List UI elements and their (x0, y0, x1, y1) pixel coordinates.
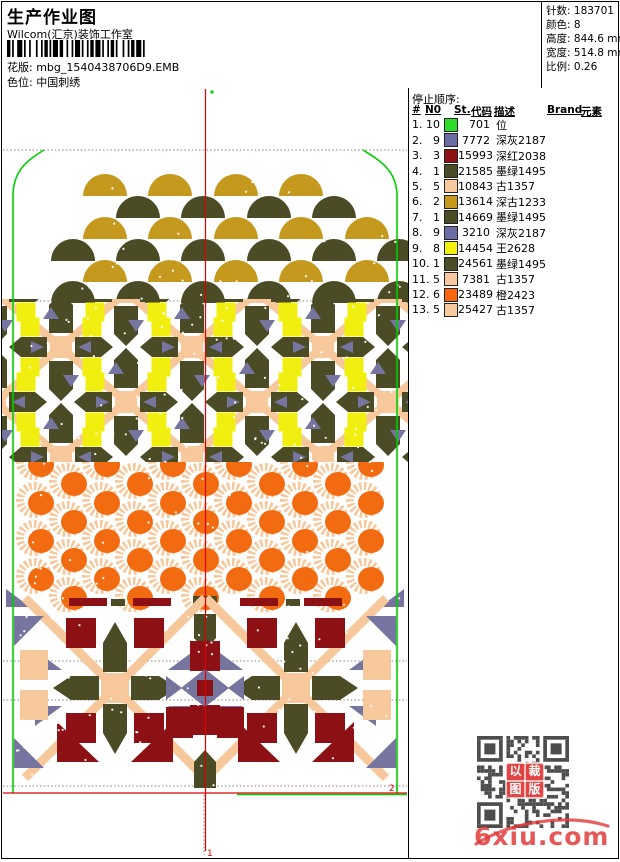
row-number: 6. (411, 195, 426, 208)
row-number: 12. (411, 288, 426, 301)
table-row: 5.510843古1357 (411, 179, 618, 194)
needle-number: 1 (426, 211, 440, 224)
stamp-char: 版 (525, 781, 544, 799)
stitch-count: 14669 (458, 211, 490, 224)
row-number: 8. (411, 226, 426, 239)
table-row: 1.10701位 (411, 117, 618, 132)
stat-scale: 比例: 0.26 (546, 61, 620, 75)
copyright-stamp: 以 裁 图 版 (506, 763, 544, 798)
needle-number: 10 (426, 118, 440, 131)
thread-description: 墨绿1495 (496, 163, 546, 179)
stitch-count: 24561 (458, 257, 490, 270)
needle-number: 5 (426, 303, 440, 316)
row-number: 5. (411, 180, 426, 193)
stamp-char: 以 (506, 763, 525, 781)
color-swatch (444, 226, 458, 240)
band-scallops (51, 174, 408, 303)
color-swatch (444, 303, 458, 317)
stitch-count: 23489 (458, 288, 490, 301)
thread-description: 墨绿1495 (496, 256, 546, 272)
stitch-count: 14454 (458, 242, 490, 255)
thread-description: 墨绿1495 (496, 209, 546, 225)
thread-description: 深灰2187 (496, 132, 546, 148)
stitch-count: 7381 (458, 273, 490, 286)
svg-text:2: 2 (389, 784, 395, 794)
pattern-label: 花版: (7, 61, 33, 74)
row-number: 9. (411, 242, 426, 255)
row-number: 1. (411, 118, 426, 131)
thread-description: 深灰2187 (496, 225, 546, 241)
row-number: 13. (411, 303, 426, 316)
needle-number: 1 (426, 165, 440, 178)
color-swatch (444, 133, 458, 147)
thread-description: 深古1233 (496, 194, 546, 210)
stat-width: 宽度: 514.8 mm (546, 47, 620, 61)
table-row: 11.57381古1357 (411, 271, 618, 286)
thread-description: 古1357 (496, 271, 535, 287)
color-swatch (444, 272, 458, 286)
needle-number: 8 (426, 242, 440, 255)
needle-number: 5 (426, 273, 440, 286)
design-preview-area: 21 (2, 88, 409, 858)
table-row: 12.623489橙2423 (411, 287, 618, 302)
color-swatch (444, 195, 458, 209)
color-swatch (444, 179, 458, 193)
embroidery-design: 21 (2, 88, 408, 858)
page-title: 生产作业图 (7, 3, 97, 28)
needle-number: 3 (426, 149, 440, 162)
needle-number: 2 (426, 195, 440, 208)
thread-description: 位 (496, 117, 507, 133)
table-row: 2.97772深灰2187 (411, 132, 618, 147)
col-needle: N0 (425, 104, 441, 116)
stitch-count: 701 (458, 118, 490, 131)
thread-description: 古1357 (496, 302, 535, 318)
thread-description: 橙2423 (496, 287, 535, 303)
thread-description: 王2628 (496, 240, 535, 256)
stat-stitches: 针数: 183701 (546, 5, 620, 19)
table-row: 8.93210深灰2187 (411, 225, 618, 240)
row-number: 2. (411, 134, 426, 147)
pattern-file-line: 花版: mbg_1540438706D9.EMB (7, 59, 179, 75)
color-swatch (444, 210, 458, 224)
watermark-text: 6xiu.com (474, 822, 609, 851)
row-number: 10. (411, 257, 426, 270)
svg-text:1: 1 (207, 849, 213, 858)
col-idx: # (412, 104, 421, 116)
table-row: 4.121585墨绿1495 (411, 163, 618, 178)
table-row: 9.814454王2628 (411, 241, 618, 256)
needle-number: 9 (426, 226, 440, 239)
needle-number: 5 (426, 180, 440, 193)
col-stitches: St. (454, 104, 471, 116)
table-row: 3.315993深红2038 (411, 148, 618, 163)
stitch-count: 3210 (458, 226, 490, 239)
row-number: 3. (411, 149, 426, 162)
pattern-value: mbg_1540438706D9.EMB (36, 61, 179, 74)
row-number: 7. (411, 211, 426, 224)
color-swatch (444, 118, 458, 132)
row-number: 11. (411, 273, 426, 286)
row-number: 4. (411, 165, 426, 178)
barcode (7, 40, 240, 57)
stitch-count: 15993 (458, 149, 490, 162)
table-row: 13.525427古1357 (411, 302, 618, 317)
needle-number: 1 (426, 257, 440, 270)
col-brand: Brand (547, 104, 582, 116)
stitch-count: 7772 (458, 134, 490, 147)
stamp-char: 裁 (525, 763, 544, 781)
stitch-count: 25427 (458, 303, 490, 316)
design-stats-panel: 针数: 183701 颜色: 8 高度: 844.6 mm 宽度: 514.8 … (541, 2, 620, 91)
color-swatch (444, 149, 458, 163)
stamp-char: 图 (506, 781, 525, 799)
color-swatch (444, 241, 458, 255)
thread-description: 深红2038 (496, 148, 546, 164)
table-row: 7.114669墨绿1495 (411, 210, 618, 225)
needle-number: 9 (426, 134, 440, 147)
stat-colors: 颜色: 8 (546, 19, 620, 33)
stat-height: 高度: 844.6 mm (546, 33, 620, 47)
needle-number: 6 (426, 288, 440, 301)
band-dots (20, 448, 384, 610)
stop-table-body: 1.10701位2.97772深灰21873.315993深红20384.121… (411, 117, 618, 318)
color-swatch (444, 164, 458, 178)
thread-description: 古1357 (496, 178, 535, 194)
color-swatch (444, 257, 458, 271)
color-swatch (444, 288, 458, 302)
table-row: 10.124561墨绿1495 (411, 256, 618, 271)
stitch-count: 21585 (458, 165, 490, 178)
header: 生产作业图 Wilcom(汇京)装饰工作室 花版: mbg_1540438706… (2, 2, 618, 89)
table-row: 6.213614深古1233 (411, 194, 618, 209)
table-header-row: # N0 St. 代码 描述 Brand 元素 (409, 104, 618, 118)
stitch-count: 10843 (458, 180, 490, 193)
watermark: 6xiu.com (470, 810, 615, 858)
stitch-count: 13614 (458, 195, 490, 208)
